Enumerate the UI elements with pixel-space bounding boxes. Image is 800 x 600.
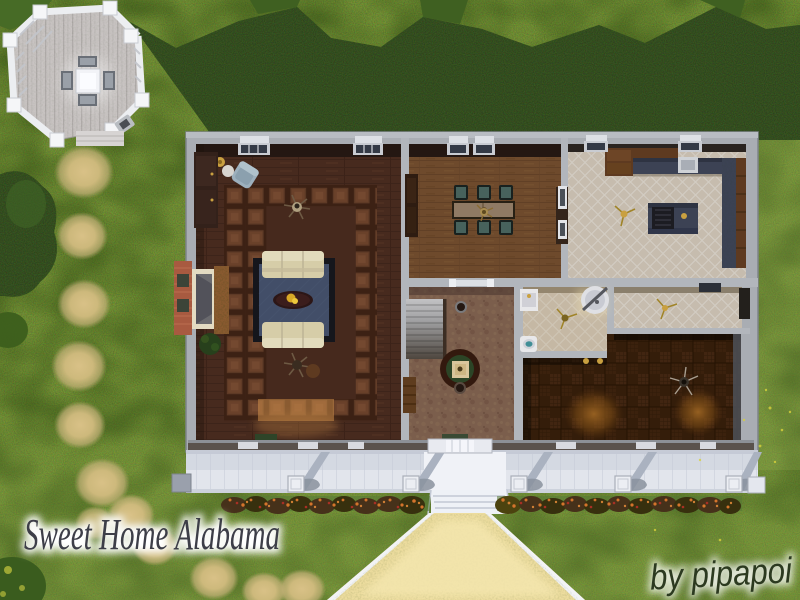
svg-text:Sweet Home Alabama: Sweet Home Alabama (24, 510, 280, 559)
svg-text:by pipapoi: by pipapoi (649, 549, 794, 597)
